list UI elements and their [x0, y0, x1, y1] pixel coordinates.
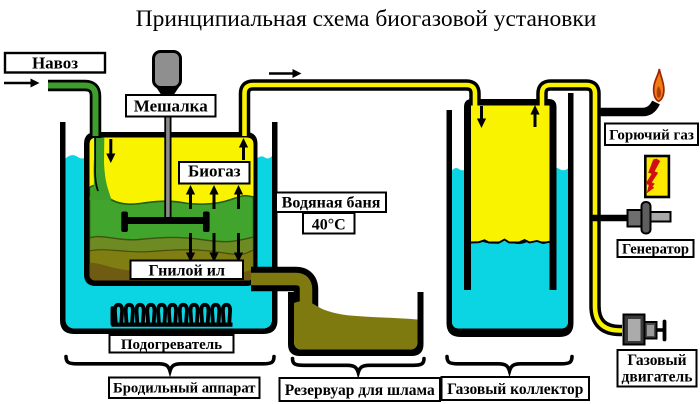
svg-text:Гнилой ил: Гнилой ил	[149, 263, 225, 280]
svg-text:двигатель: двигатель	[622, 368, 693, 385]
svg-text:Горючий газ: Горючий газ	[609, 127, 694, 143]
svg-text:Бродильный аппарат: Бродильный аппарат	[113, 381, 256, 397]
svg-text:Генератор: Генератор	[622, 241, 689, 257]
svg-text:Водяная баня: Водяная баня	[282, 195, 381, 212]
svg-text:40°C: 40°C	[312, 216, 346, 233]
svg-text:Принципиальная схема биогазово: Принципиальная схема биогазовой установк…	[136, 6, 597, 32]
svg-text:Подогреватель: Подогреватель	[121, 337, 222, 353]
svg-text:Газовый: Газовый	[627, 352, 686, 369]
svg-text:Мешалка: Мешалка	[134, 97, 208, 116]
svg-text:Навоз: Навоз	[32, 54, 78, 73]
svg-text:Резервуар для шлама: Резервуар для шлама	[285, 382, 435, 399]
svg-text:Газовый коллектор: Газовый коллектор	[447, 381, 583, 398]
svg-text:Биогаз: Биогаз	[188, 162, 241, 181]
